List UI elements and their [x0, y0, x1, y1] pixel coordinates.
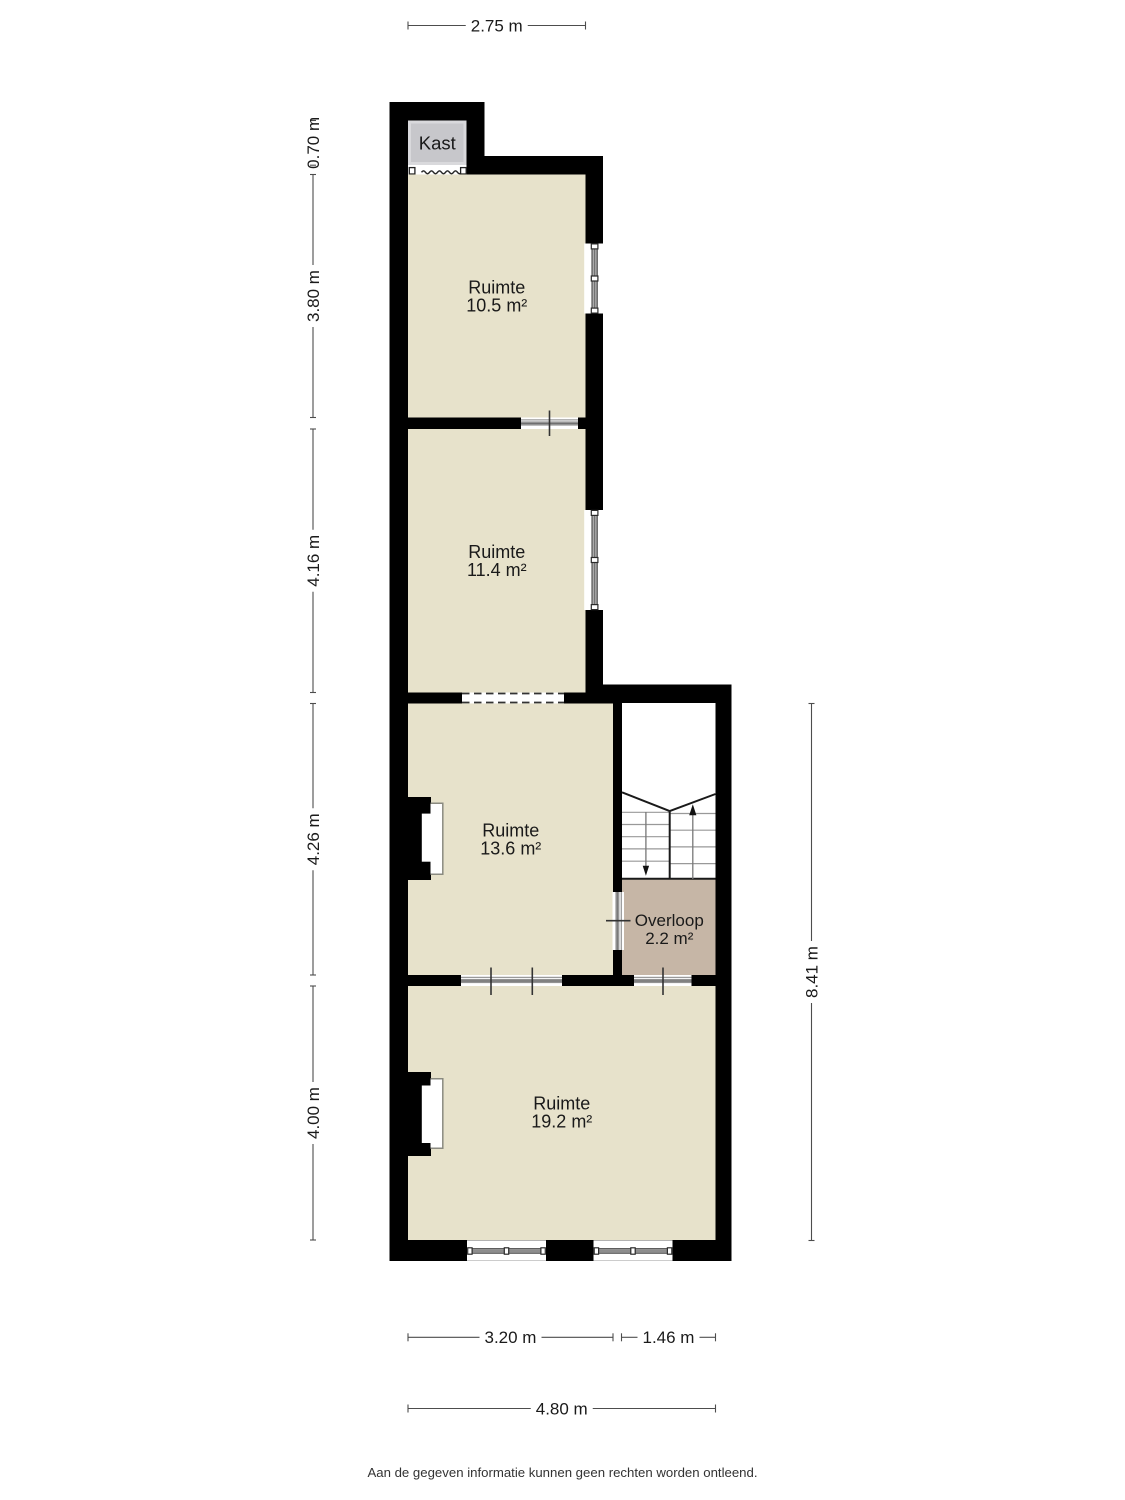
svg-text:Ruimte: Ruimte [482, 821, 539, 841]
svg-text:4.26 m: 4.26 m [304, 813, 323, 865]
svg-text:8.41 m: 8.41 m [803, 946, 822, 998]
svg-text:1.46 m: 1.46 m [643, 1328, 695, 1347]
svg-text:13.6 m²: 13.6 m² [480, 839, 541, 859]
svg-text:3.20 m: 3.20 m [485, 1328, 537, 1347]
svg-text:0.70 m: 0.70 m [304, 117, 323, 169]
svg-text:Aan de gegeven informatie kunn: Aan de gegeven informatie kunnen geen re… [367, 1465, 757, 1480]
svg-text:Ruimte: Ruimte [533, 1094, 590, 1114]
svg-text:Ruimte: Ruimte [468, 542, 525, 562]
svg-text:3.80 m: 3.80 m [304, 270, 323, 322]
svg-text:Overloop: Overloop [635, 911, 704, 930]
svg-text:4.80 m: 4.80 m [536, 1399, 588, 1418]
svg-text:4.00 m: 4.00 m [304, 1087, 323, 1139]
svg-text:2.2 m²: 2.2 m² [645, 929, 694, 948]
svg-text:19.2 m²: 19.2 m² [531, 1112, 592, 1132]
svg-text:4.16 m: 4.16 m [304, 535, 323, 587]
svg-text:2.75 m: 2.75 m [471, 16, 523, 35]
svg-text:10.5 m²: 10.5 m² [466, 296, 527, 316]
svg-text:Ruimte: Ruimte [468, 278, 525, 298]
svg-text:Kast: Kast [419, 133, 456, 154]
svg-text:11.4 m²: 11.4 m² [467, 560, 527, 580]
